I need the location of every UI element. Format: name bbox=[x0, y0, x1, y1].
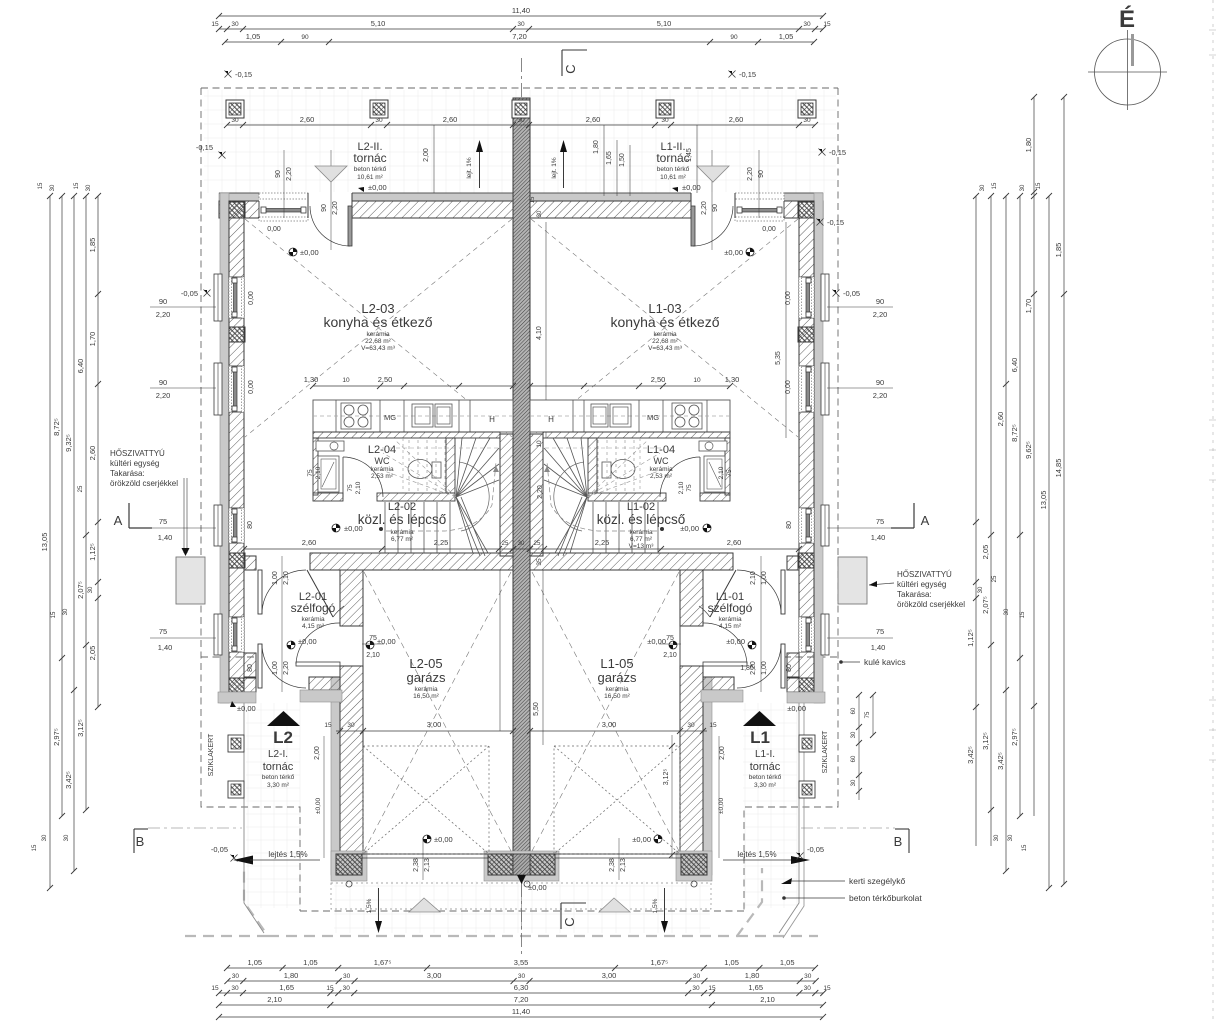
svg-text:1,80: 1,80 bbox=[284, 971, 299, 980]
svg-text:±0,00: ±0,00 bbox=[647, 637, 666, 646]
svg-text:beton térkő: beton térkő bbox=[657, 166, 690, 173]
svg-text:80: 80 bbox=[247, 521, 254, 529]
svg-text:közl. és lépcső: közl. és lépcső bbox=[358, 512, 447, 527]
svg-text:1,40: 1,40 bbox=[871, 533, 886, 542]
svg-text:6,30: 6,30 bbox=[514, 983, 529, 992]
svg-text:90: 90 bbox=[730, 34, 738, 41]
svg-text:30: 30 bbox=[1020, 184, 1026, 191]
svg-text:lejt. 1%: lejt. 1% bbox=[466, 157, 473, 179]
svg-text:90: 90 bbox=[159, 297, 167, 306]
svg-text:2,53 m²: 2,53 m² bbox=[371, 473, 394, 480]
svg-text:kerámia: kerámia bbox=[414, 686, 438, 693]
svg-text:30: 30 bbox=[231, 985, 239, 992]
svg-text:5,10: 5,10 bbox=[657, 19, 672, 28]
svg-text:1,70: 1,70 bbox=[1024, 299, 1033, 314]
svg-text:75: 75 bbox=[726, 469, 733, 477]
svg-text:3,30 m²: 3,30 m² bbox=[267, 782, 290, 789]
svg-text:30: 30 bbox=[517, 117, 525, 124]
svg-text:7,20: 7,20 bbox=[512, 32, 527, 41]
svg-text:6,40: 6,40 bbox=[76, 359, 85, 374]
svg-text:10: 10 bbox=[693, 377, 701, 384]
svg-text:3,42⁵: 3,42⁵ bbox=[966, 746, 975, 764]
svg-text:30: 30 bbox=[851, 731, 857, 738]
svg-text:1,85: 1,85 bbox=[740, 665, 754, 672]
svg-text:14,85: 14,85 bbox=[1054, 459, 1063, 478]
svg-text:30: 30 bbox=[86, 184, 92, 191]
svg-text:15: 15 bbox=[1020, 611, 1026, 618]
svg-text:±0,00: ±0,00 bbox=[682, 183, 701, 192]
svg-text:2,13: 2,13 bbox=[424, 858, 431, 872]
svg-text:±0,00: ±0,00 bbox=[344, 524, 363, 533]
svg-text:75: 75 bbox=[686, 484, 693, 492]
svg-text:30: 30 bbox=[518, 973, 526, 980]
svg-text:1,40: 1,40 bbox=[871, 643, 886, 652]
svg-text:1,80: 1,80 bbox=[745, 971, 760, 980]
svg-text:15: 15 bbox=[992, 182, 998, 189]
svg-text:±0,00: ±0,00 bbox=[368, 183, 387, 192]
svg-text:B: B bbox=[136, 834, 145, 849]
svg-text:75: 75 bbox=[347, 484, 354, 492]
svg-text:4,15 m²: 4,15 m² bbox=[719, 623, 742, 630]
svg-text:2,20: 2,20 bbox=[286, 167, 293, 181]
svg-text:15: 15 bbox=[51, 611, 57, 618]
svg-text:lejtés 1,5%: lejtés 1,5% bbox=[268, 850, 307, 859]
svg-text:3,55: 3,55 bbox=[514, 958, 529, 967]
svg-text:16,50 m²: 16,50 m² bbox=[604, 693, 630, 700]
svg-text:75: 75 bbox=[876, 627, 884, 636]
svg-text:30: 30 bbox=[692, 985, 700, 992]
svg-text:2,10: 2,10 bbox=[760, 995, 775, 1004]
svg-text:90: 90 bbox=[275, 170, 282, 178]
svg-text:garázs: garázs bbox=[406, 670, 446, 685]
svg-text:WC: WC bbox=[654, 456, 669, 466]
svg-text:30: 30 bbox=[1004, 608, 1010, 615]
svg-text:10: 10 bbox=[536, 440, 543, 448]
svg-text:B: B bbox=[894, 834, 903, 849]
svg-text:1,80: 1,80 bbox=[593, 140, 600, 154]
svg-text:30: 30 bbox=[687, 722, 695, 729]
svg-text:2,25: 2,25 bbox=[434, 538, 449, 547]
svg-text:30: 30 bbox=[63, 608, 69, 615]
svg-text:30: 30 bbox=[88, 586, 94, 593]
svg-text:-0,05: -0,05 bbox=[843, 289, 860, 298]
svg-text:1,5%: 1,5% bbox=[366, 898, 373, 913]
svg-text:30: 30 bbox=[343, 985, 351, 992]
svg-text:-0,15: -0,15 bbox=[827, 218, 844, 227]
svg-text:3,42⁵: 3,42⁵ bbox=[996, 752, 1005, 770]
svg-text:15: 15 bbox=[1022, 844, 1028, 851]
svg-text:25: 25 bbox=[534, 541, 541, 547]
svg-text:2,20: 2,20 bbox=[332, 201, 339, 215]
svg-text:1,00: 1,00 bbox=[272, 661, 279, 675]
svg-text:0,00: 0,00 bbox=[762, 226, 776, 233]
svg-text:80: 80 bbox=[786, 664, 793, 672]
svg-text:L1: L1 bbox=[750, 728, 770, 747]
svg-text:2,10: 2,10 bbox=[267, 995, 282, 1004]
svg-text:tornác: tornác bbox=[353, 151, 386, 165]
svg-text:80: 80 bbox=[786, 521, 793, 529]
svg-text:15: 15 bbox=[38, 182, 44, 189]
svg-text:3,42⁵: 3,42⁵ bbox=[64, 771, 73, 789]
svg-text:MG: MG bbox=[647, 413, 659, 422]
svg-text:kerámia: kerámia bbox=[605, 686, 629, 693]
svg-text:2,60: 2,60 bbox=[443, 115, 458, 124]
svg-text:75: 75 bbox=[307, 469, 314, 477]
svg-text:2,05: 2,05 bbox=[981, 545, 990, 560]
svg-text:2,00: 2,00 bbox=[719, 746, 726, 760]
svg-text:L1-I.: L1-I. bbox=[755, 749, 775, 760]
svg-text:30: 30 bbox=[231, 21, 239, 28]
svg-text:13,05: 13,05 bbox=[1039, 491, 1048, 510]
svg-text:30: 30 bbox=[804, 973, 812, 980]
svg-text:1,5%: 1,5% bbox=[652, 898, 659, 913]
svg-text:90: 90 bbox=[321, 204, 328, 212]
svg-text:1,30: 1,30 bbox=[304, 375, 319, 384]
svg-text:30: 30 bbox=[978, 586, 984, 593]
svg-text:30: 30 bbox=[518, 541, 525, 547]
svg-text:±0,00: ±0,00 bbox=[726, 637, 745, 646]
svg-text:11,40: 11,40 bbox=[512, 1007, 530, 1016]
svg-text:15: 15 bbox=[823, 985, 831, 992]
svg-text:kerámia: kerámia bbox=[718, 616, 742, 623]
svg-text:6,77 m²: 6,77 m² bbox=[391, 536, 414, 543]
svg-text:25: 25 bbox=[502, 541, 509, 547]
svg-text:1,85: 1,85 bbox=[88, 238, 97, 253]
svg-text:8,72⁵: 8,72⁵ bbox=[1010, 424, 1019, 442]
svg-text:2,20: 2,20 bbox=[537, 485, 544, 499]
svg-text:75: 75 bbox=[666, 635, 674, 642]
svg-text:kerámia: kerámia bbox=[653, 331, 677, 338]
svg-text:15: 15 bbox=[32, 844, 38, 851]
svg-text:2,10: 2,10 bbox=[366, 652, 380, 659]
svg-text:±0,00: ±0,00 bbox=[718, 798, 725, 815]
svg-text:-0,05: -0,05 bbox=[211, 845, 228, 854]
svg-text:lejt. 1%: lejt. 1% bbox=[551, 157, 558, 179]
svg-text:kulé kavics: kulé kavics bbox=[864, 657, 906, 667]
svg-text:HŐSZIVATTYÚ: HŐSZIVATTYÚ bbox=[110, 449, 165, 458]
svg-text:8,72⁵: 8,72⁵ bbox=[52, 418, 61, 436]
svg-text:15: 15 bbox=[324, 722, 332, 729]
svg-text:H: H bbox=[548, 415, 554, 424]
svg-text:WC: WC bbox=[375, 456, 390, 466]
svg-text:A: A bbox=[114, 513, 123, 528]
svg-text:1,70: 1,70 bbox=[88, 332, 97, 347]
svg-text:2,60: 2,60 bbox=[302, 538, 317, 547]
svg-text:V=63,43 m³: V=63,43 m³ bbox=[361, 345, 396, 352]
svg-text:2,10: 2,10 bbox=[315, 466, 322, 479]
svg-text:1,65: 1,65 bbox=[748, 983, 763, 992]
svg-text:örökzöld cserjékkel: örökzöld cserjékkel bbox=[897, 600, 965, 609]
svg-text:HŐSZIVATTYÚ: HŐSZIVATTYÚ bbox=[897, 570, 952, 579]
svg-text:SZIKLAKERT: SZIKLAKERT bbox=[822, 730, 829, 773]
svg-text:2,60: 2,60 bbox=[729, 115, 744, 124]
svg-text:H: H bbox=[489, 415, 495, 424]
svg-text:kerámia: kerámia bbox=[629, 529, 653, 536]
svg-text:25: 25 bbox=[78, 485, 84, 492]
svg-text:4,10: 4,10 bbox=[536, 326, 543, 340]
svg-text:13,05: 13,05 bbox=[40, 533, 49, 552]
svg-text:L2-05: L2-05 bbox=[409, 656, 442, 671]
svg-text:90: 90 bbox=[301, 34, 309, 41]
svg-text:10,61 m²: 10,61 m² bbox=[357, 174, 383, 181]
svg-text:L2-I.: L2-I. bbox=[268, 749, 288, 760]
svg-text:kerti szegélykő: kerti szegélykő bbox=[849, 876, 905, 886]
svg-text:6,40: 6,40 bbox=[1010, 358, 1019, 373]
svg-text:±0,00: ±0,00 bbox=[237, 704, 256, 713]
svg-text:kültéri egység: kültéri egység bbox=[897, 580, 946, 589]
svg-text:0,00: 0,00 bbox=[267, 226, 281, 233]
svg-text:2,60: 2,60 bbox=[300, 115, 315, 124]
svg-text:2,60: 2,60 bbox=[727, 538, 742, 547]
svg-text:35: 35 bbox=[536, 558, 543, 566]
svg-text:A: A bbox=[921, 513, 930, 528]
svg-text:L1-04: L1-04 bbox=[647, 444, 675, 456]
svg-text:1,65: 1,65 bbox=[606, 151, 613, 165]
svg-text:kerámia: kerámia bbox=[649, 466, 673, 473]
svg-text:2,20: 2,20 bbox=[873, 310, 888, 319]
svg-text:1,67⁵: 1,67⁵ bbox=[374, 958, 392, 967]
svg-text:2,97⁵: 2,97⁵ bbox=[52, 728, 61, 746]
svg-text:2,07⁵: 2,07⁵ bbox=[76, 581, 85, 599]
svg-text:30: 30 bbox=[343, 973, 351, 980]
svg-text:90: 90 bbox=[712, 204, 719, 212]
svg-text:garázs: garázs bbox=[597, 670, 637, 685]
svg-text:±0,00: ±0,00 bbox=[300, 248, 319, 257]
svg-text:±0,00: ±0,00 bbox=[315, 798, 322, 815]
svg-text:Takarása:: Takarása: bbox=[897, 590, 932, 599]
svg-text:1,40: 1,40 bbox=[158, 643, 173, 652]
svg-text:É: É bbox=[1119, 5, 1135, 33]
svg-text:konyha és étkező: konyha és étkező bbox=[611, 314, 720, 330]
svg-text:2,38: 2,38 bbox=[413, 858, 420, 872]
svg-text:1,00: 1,00 bbox=[761, 571, 768, 585]
svg-text:3,00: 3,00 bbox=[602, 971, 617, 980]
svg-text:1,85: 1,85 bbox=[1054, 243, 1063, 258]
svg-text:1,00: 1,00 bbox=[761, 661, 768, 675]
svg-text:1,05: 1,05 bbox=[779, 32, 794, 41]
svg-text:0,00: 0,00 bbox=[248, 291, 255, 305]
svg-text:22,68 m²: 22,68 m² bbox=[365, 338, 391, 345]
svg-text:±0,00: ±0,00 bbox=[787, 704, 806, 713]
svg-text:30: 30 bbox=[517, 21, 525, 28]
svg-text:5,35: 5,35 bbox=[775, 351, 782, 365]
svg-text:30: 30 bbox=[980, 184, 986, 191]
svg-text:2,97⁵: 2,97⁵ bbox=[1010, 728, 1019, 746]
svg-text:25: 25 bbox=[992, 575, 998, 582]
svg-text:±0,00: ±0,00 bbox=[298, 637, 317, 646]
svg-text:30: 30 bbox=[994, 834, 1000, 841]
svg-text:75: 75 bbox=[159, 517, 167, 526]
svg-text:80: 80 bbox=[247, 664, 254, 672]
svg-text:4,15 m²: 4,15 m² bbox=[302, 623, 325, 630]
svg-text:3,12⁵: 3,12⁵ bbox=[981, 732, 990, 750]
svg-text:beton térkő: beton térkő bbox=[354, 166, 387, 173]
svg-text:30: 30 bbox=[851, 779, 857, 786]
svg-text:2,60: 2,60 bbox=[996, 412, 1005, 427]
svg-text:2,10: 2,10 bbox=[750, 571, 757, 585]
svg-text:±0,00: ±0,00 bbox=[724, 248, 743, 257]
svg-text:15: 15 bbox=[211, 985, 219, 992]
svg-text:-0,15: -0,15 bbox=[739, 70, 756, 79]
svg-text:90: 90 bbox=[876, 297, 884, 306]
svg-text:30: 30 bbox=[42, 834, 48, 841]
svg-text:1,12⁵: 1,12⁵ bbox=[966, 629, 975, 647]
svg-text:SZIKLAKERT: SZIKLAKERT bbox=[208, 733, 215, 776]
svg-text:kerámia: kerámia bbox=[370, 466, 394, 473]
svg-text:2,20: 2,20 bbox=[701, 201, 708, 215]
svg-text:9,62⁵: 9,62⁵ bbox=[1024, 441, 1033, 459]
svg-text:örökzöld cserjékkel: örökzöld cserjékkel bbox=[110, 479, 178, 488]
svg-text:1,67⁵: 1,67⁵ bbox=[651, 958, 669, 967]
svg-text:C: C bbox=[562, 917, 577, 926]
svg-text:5,10: 5,10 bbox=[371, 19, 386, 28]
svg-text:15: 15 bbox=[1036, 182, 1042, 189]
svg-text:-0,05: -0,05 bbox=[181, 289, 198, 298]
svg-text:30: 30 bbox=[804, 985, 812, 992]
svg-text:3,30 m²: 3,30 m² bbox=[754, 782, 777, 789]
svg-text:kerámia: kerámia bbox=[301, 616, 325, 623]
svg-text:kültéri egység: kültéri egység bbox=[110, 459, 159, 468]
svg-text:30: 30 bbox=[803, 21, 811, 28]
svg-text:90: 90 bbox=[758, 170, 765, 178]
svg-text:75: 75 bbox=[865, 711, 871, 718]
svg-text:2,05: 2,05 bbox=[88, 646, 97, 661]
svg-text:közl. és lépcső: közl. és lépcső bbox=[597, 512, 686, 527]
svg-text:±0,00: ±0,00 bbox=[377, 637, 396, 646]
svg-text:1,05: 1,05 bbox=[724, 958, 739, 967]
svg-text:2,07⁵: 2,07⁵ bbox=[981, 596, 990, 614]
svg-text:15: 15 bbox=[326, 985, 334, 992]
svg-text:2,38: 2,38 bbox=[609, 858, 616, 872]
svg-text:15: 15 bbox=[823, 21, 831, 28]
svg-text:75: 75 bbox=[159, 627, 167, 636]
svg-text:±0,00: ±0,00 bbox=[434, 835, 453, 844]
svg-text:11,40: 11,40 bbox=[512, 6, 530, 15]
svg-text:30: 30 bbox=[347, 722, 355, 729]
svg-text:90: 90 bbox=[876, 378, 884, 387]
svg-text:16,50 m²: 16,50 m² bbox=[413, 693, 439, 700]
svg-text:1,40: 1,40 bbox=[158, 533, 173, 542]
svg-text:beton térkő: beton térkő bbox=[749, 774, 782, 781]
svg-text:2,10: 2,10 bbox=[718, 466, 725, 479]
svg-text:30: 30 bbox=[537, 210, 543, 217]
svg-text:15: 15 bbox=[709, 722, 717, 729]
svg-text:1,05: 1,05 bbox=[247, 958, 262, 967]
svg-text:2,50: 2,50 bbox=[651, 375, 666, 384]
svg-text:-0,15: -0,15 bbox=[235, 70, 252, 79]
svg-text:10: 10 bbox=[342, 377, 350, 384]
svg-text:2,53 m²: 2,53 m² bbox=[650, 473, 673, 480]
svg-text:75: 75 bbox=[876, 517, 884, 526]
svg-text:1,30: 1,30 bbox=[725, 375, 740, 384]
svg-text:5,50: 5,50 bbox=[533, 702, 540, 716]
svg-text:75: 75 bbox=[369, 635, 377, 642]
svg-text:MG: MG bbox=[384, 413, 396, 422]
svg-text:Takarása:: Takarása: bbox=[110, 469, 145, 478]
svg-text:L1-05: L1-05 bbox=[600, 656, 633, 671]
svg-text:1,12⁵: 1,12⁵ bbox=[88, 543, 97, 561]
svg-text:90: 90 bbox=[159, 378, 167, 387]
svg-text:15: 15 bbox=[211, 21, 219, 28]
svg-text:7,20: 7,20 bbox=[514, 995, 529, 1004]
svg-text:30: 30 bbox=[64, 834, 70, 841]
svg-text:2,20: 2,20 bbox=[156, 391, 171, 400]
svg-text:tornác: tornác bbox=[750, 761, 781, 773]
svg-text:2,13: 2,13 bbox=[620, 858, 627, 872]
svg-text:1,65: 1,65 bbox=[279, 983, 294, 992]
svg-text:2,20: 2,20 bbox=[747, 167, 754, 181]
svg-text:szélfogó: szélfogó bbox=[291, 601, 336, 615]
svg-text:C: C bbox=[563, 64, 578, 73]
svg-text:30: 30 bbox=[231, 117, 239, 124]
svg-text:2,00: 2,00 bbox=[314, 746, 321, 760]
svg-text:60: 60 bbox=[851, 707, 857, 714]
svg-text:30: 30 bbox=[661, 117, 669, 124]
svg-text:1,05: 1,05 bbox=[246, 32, 261, 41]
svg-text:1,80: 1,80 bbox=[1024, 138, 1033, 153]
svg-text:konyha és étkező: konyha és étkező bbox=[324, 314, 433, 330]
svg-text:±0,00: ±0,00 bbox=[528, 883, 547, 892]
svg-text:V=63,43 m³: V=63,43 m³ bbox=[648, 345, 683, 352]
svg-text:30: 30 bbox=[232, 973, 240, 980]
svg-text:3,12⁵: 3,12⁵ bbox=[76, 719, 85, 737]
svg-text:1,45: 1,45 bbox=[686, 148, 693, 162]
svg-text:30: 30 bbox=[375, 117, 383, 124]
svg-text:15: 15 bbox=[708, 985, 716, 992]
svg-text:3,12⁵: 3,12⁵ bbox=[663, 769, 670, 786]
svg-text:15: 15 bbox=[74, 182, 80, 189]
svg-text:0,00: 0,00 bbox=[248, 380, 255, 394]
svg-text:±0,00: ±0,00 bbox=[632, 835, 651, 844]
svg-text:kerámia: kerámia bbox=[390, 529, 414, 536]
svg-text:30: 30 bbox=[803, 117, 811, 124]
svg-text:60: 60 bbox=[851, 755, 857, 762]
svg-text:1,50: 1,50 bbox=[619, 153, 626, 167]
svg-text:2,20: 2,20 bbox=[283, 661, 290, 675]
svg-text:lejtés 1,5%: lejtés 1,5% bbox=[737, 850, 776, 859]
svg-text:szélfogó: szélfogó bbox=[708, 601, 753, 615]
svg-text:2,20: 2,20 bbox=[873, 391, 888, 400]
svg-text:kerámia: kerámia bbox=[366, 331, 390, 338]
svg-text:30: 30 bbox=[50, 184, 56, 191]
svg-text:2,60: 2,60 bbox=[88, 446, 97, 461]
svg-text:15: 15 bbox=[530, 196, 536, 203]
svg-text:2,10: 2,10 bbox=[355, 481, 362, 494]
svg-text:1,00: 1,00 bbox=[272, 571, 279, 585]
svg-text:tornác: tornác bbox=[656, 151, 689, 165]
svg-text:-0,15: -0,15 bbox=[196, 143, 213, 152]
svg-text:6,77 m²: 6,77 m² bbox=[630, 536, 653, 543]
svg-text:2,50: 2,50 bbox=[378, 375, 393, 384]
svg-text:2,10: 2,10 bbox=[283, 571, 290, 585]
svg-text:-0,15: -0,15 bbox=[829, 148, 846, 157]
svg-text:1,05: 1,05 bbox=[780, 958, 795, 967]
svg-text:2,10: 2,10 bbox=[663, 652, 677, 659]
svg-text:L2: L2 bbox=[273, 728, 293, 747]
svg-text:30: 30 bbox=[1008, 834, 1014, 841]
svg-text:2,60: 2,60 bbox=[586, 115, 601, 124]
svg-text:3,00: 3,00 bbox=[602, 720, 617, 729]
svg-text:±0,00: ±0,00 bbox=[680, 524, 699, 533]
svg-text:2,00: 2,00 bbox=[423, 148, 430, 162]
svg-text:beton térkőburkolat: beton térkőburkolat bbox=[849, 893, 922, 903]
svg-text:30: 30 bbox=[693, 973, 701, 980]
svg-text:tornác: tornác bbox=[263, 761, 294, 773]
svg-text:L2-04: L2-04 bbox=[368, 444, 396, 456]
svg-text:22,68 m²: 22,68 m² bbox=[652, 338, 678, 345]
svg-text:3,00: 3,00 bbox=[427, 971, 442, 980]
svg-text:1,05: 1,05 bbox=[303, 958, 318, 967]
